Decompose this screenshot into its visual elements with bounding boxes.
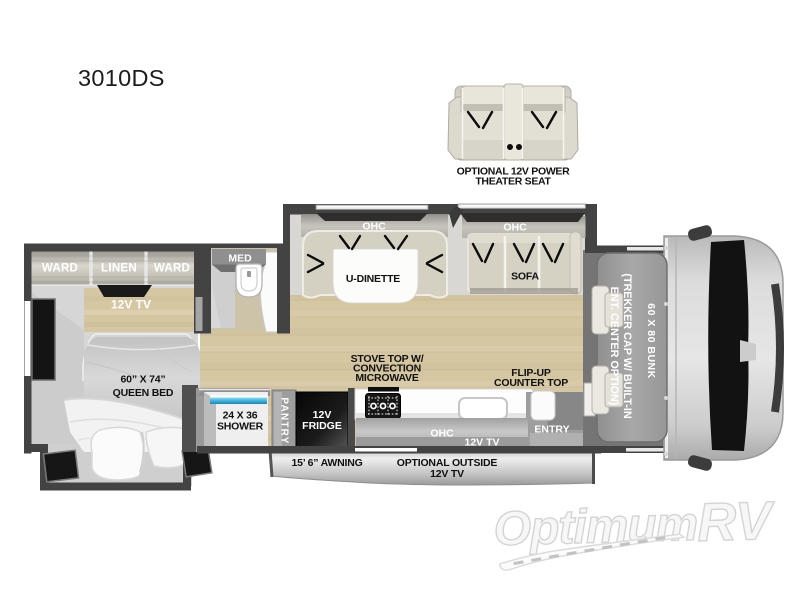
svg-text:MED: MED <box>228 253 252 265</box>
svg-text:U-DINETTE: U-DINETTE <box>346 273 400 285</box>
svg-text:OHC: OHC <box>503 222 527 234</box>
svg-text:COUNTER TOP: COUNTER TOP <box>494 377 568 389</box>
svg-text:PANTRY: PANTRY <box>279 397 290 444</box>
svg-text:MICROWAVE: MICROWAVE <box>355 372 419 384</box>
svg-text:SHOWER: SHOWER <box>217 421 264 433</box>
svg-text:12V TV: 12V TV <box>111 298 151 312</box>
svg-text:THEATER SEAT: THEATER SEAT <box>475 176 551 188</box>
svg-text:FRIDGE: FRIDGE <box>302 420 342 432</box>
svg-text:12V TV: 12V TV <box>430 468 464 480</box>
svg-text:ENTRY: ENTRY <box>534 424 569 436</box>
svg-text:WARD: WARD <box>154 263 190 275</box>
svg-text:60 X 80 BUNK: 60 X 80 BUNK <box>645 303 657 378</box>
svg-text:(TREKKER CAP W/ BUILT-IN: (TREKKER CAP W/ BUILT-IN <box>621 273 633 419</box>
svg-text:WARD: WARD <box>42 263 78 275</box>
svg-text:LINEN: LINEN <box>101 263 137 275</box>
svg-text:QUEEN BED: QUEEN BED <box>113 387 174 399</box>
svg-text:3010DS: 3010DS <box>78 65 165 91</box>
svg-text:60” X 74”: 60” X 74” <box>121 374 166 386</box>
svg-text:15’ 6” AWNING: 15’ 6” AWNING <box>291 457 362 469</box>
svg-text:SOFA: SOFA <box>511 271 539 283</box>
svg-text:ENT. CENTER OPTION): ENT. CENTER OPTION) <box>608 287 620 406</box>
svg-text:OHC: OHC <box>430 428 454 440</box>
